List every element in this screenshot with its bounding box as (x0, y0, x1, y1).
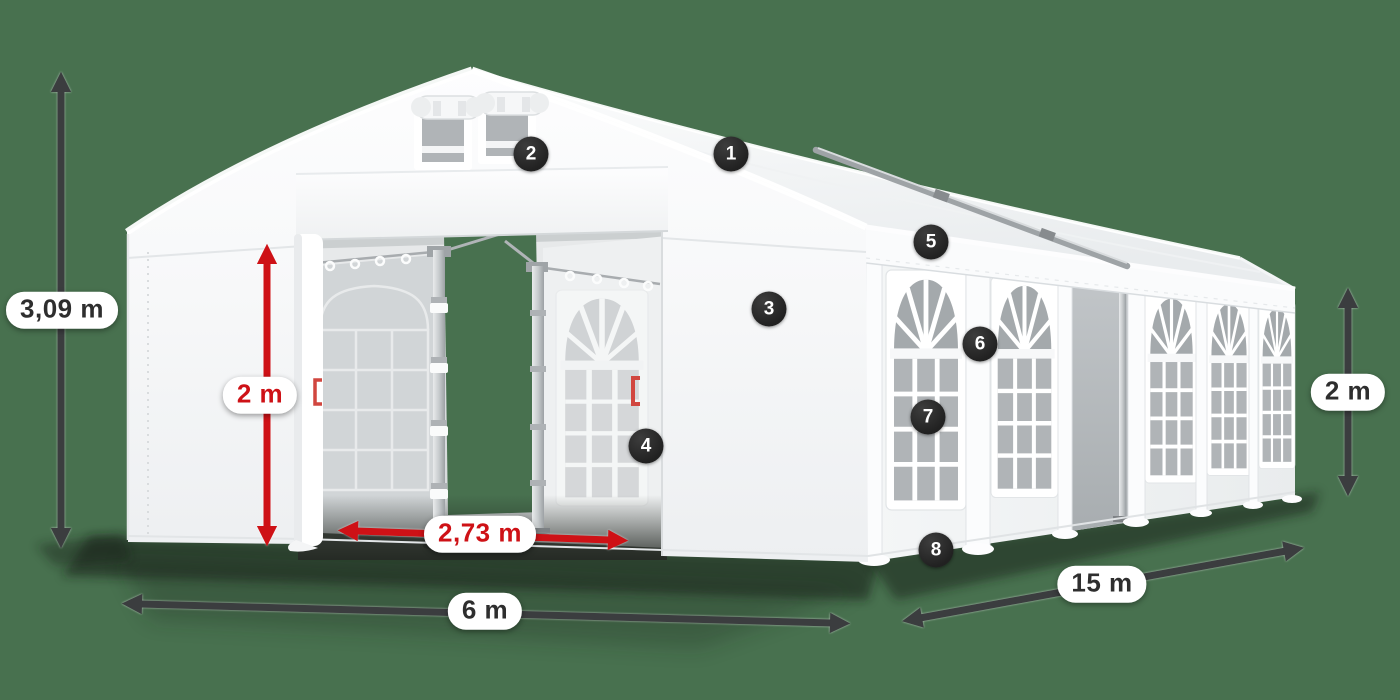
side-entrance-open (1072, 262, 1130, 531)
dimension-label-tent-width: 6 m (448, 593, 522, 630)
callout-marker-6: 6 (963, 327, 998, 362)
callout-marker-1: 1 (714, 137, 749, 172)
dimension-label-tent-length: 15 m (1057, 566, 1146, 603)
callout-marker-5: 5 (914, 225, 949, 260)
vent-rolls (411, 92, 549, 119)
dimension-label-side-wall-height: 2 m (1311, 374, 1385, 411)
callout-marker-8: 8 (919, 533, 954, 568)
tent-illustration (0, 0, 1400, 700)
entrance-header (296, 167, 668, 240)
callout-marker-7: 7 (911, 400, 946, 435)
tent-dimension-diagram: 3,09 m 2 m 2,73 m 6 m 15 m 2 m 1 2 3 4 5… (0, 0, 1400, 700)
callout-marker-2: 2 (514, 137, 549, 172)
callout-marker-4: 4 (629, 429, 664, 464)
see-through-opening (444, 231, 541, 515)
dimension-label-total-height: 3,09 m (6, 292, 118, 329)
dimension-label-entrance-height: 2 m (223, 377, 297, 414)
tent-interior (298, 226, 667, 560)
dimension-label-entrance-width: 2,73 m (424, 516, 536, 553)
callout-marker-3: 3 (752, 292, 787, 327)
